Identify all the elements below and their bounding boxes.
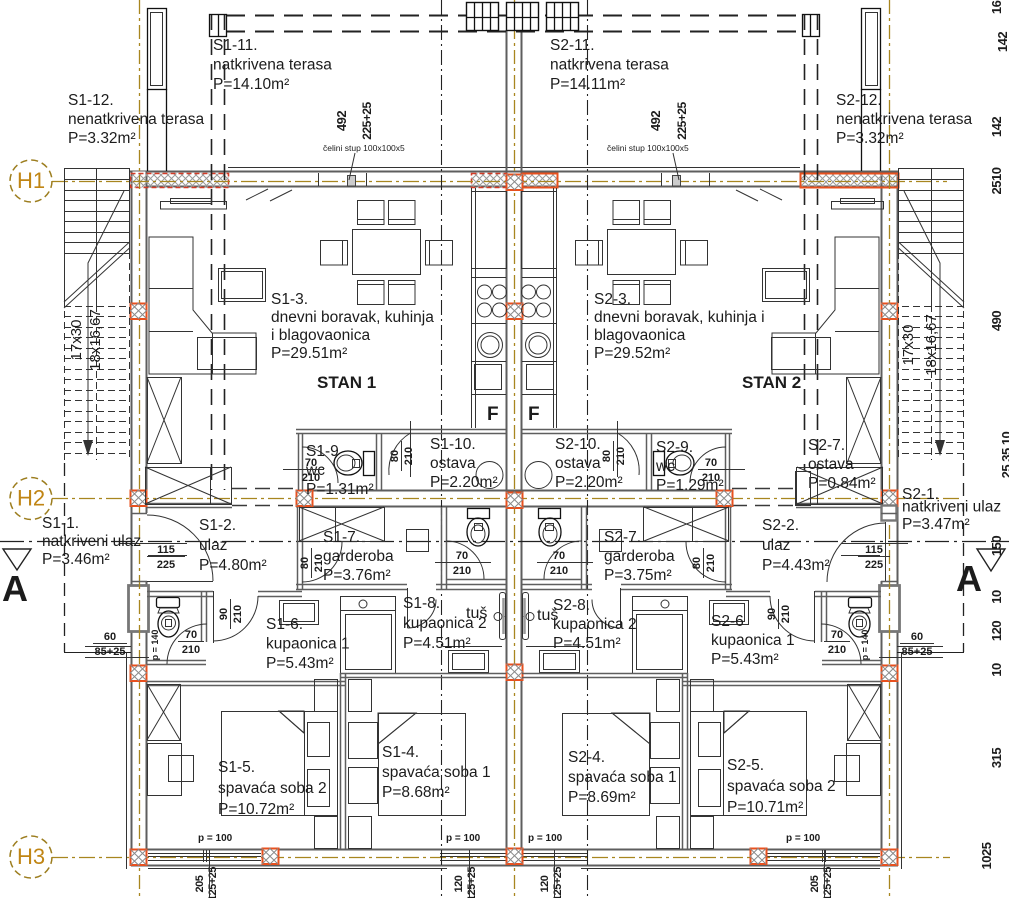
svg-text:čelini stup 100x100x5: čelini stup 100x100x5 xyxy=(323,143,405,153)
svg-text:natkriveni ulaz: natkriveni ulaz xyxy=(42,533,141,550)
svg-text:115: 115 xyxy=(865,544,883,556)
svg-text:225: 225 xyxy=(865,559,883,571)
svg-text:10: 10 xyxy=(989,590,1004,604)
svg-text:70: 70 xyxy=(831,629,843,641)
svg-text:P=8.68m²: P=8.68m² xyxy=(382,784,450,801)
svg-text:spavaća soba 1: spavaća soba 1 xyxy=(382,764,491,781)
svg-text:210: 210 xyxy=(780,605,792,623)
svg-text:210: 210 xyxy=(403,447,415,465)
svg-text:S1-6.: S1-6. xyxy=(266,616,303,633)
svg-text:S2-5.: S2-5. xyxy=(727,757,764,774)
svg-text:S1-12.: S1-12. xyxy=(68,92,114,109)
svg-text:garderoba: garderoba xyxy=(604,548,675,565)
svg-text:p = 140: p = 140 xyxy=(860,630,870,661)
svg-text:142: 142 xyxy=(989,117,1004,137)
svg-text:10: 10 xyxy=(989,663,1004,677)
svg-text:S2-4.: S2-4. xyxy=(568,749,605,766)
svg-text:tuš: tuš xyxy=(537,607,558,624)
svg-text:125+25: 125+25 xyxy=(552,867,564,898)
svg-text:S1-1.: S1-1. xyxy=(42,515,79,532)
svg-text:315: 315 xyxy=(989,748,1004,768)
svg-text:S1-2.: S1-2. xyxy=(199,517,236,534)
svg-text:čelini stup 100x100x5: čelini stup 100x100x5 xyxy=(607,143,689,153)
svg-text:p = 140: p = 140 xyxy=(150,630,160,661)
svg-text:P=5.43m²: P=5.43m² xyxy=(711,651,779,668)
svg-text:natkriveni ulaz: natkriveni ulaz xyxy=(902,499,1001,516)
svg-text:210: 210 xyxy=(705,554,717,572)
svg-text:150: 150 xyxy=(989,536,1004,556)
svg-text:210: 210 xyxy=(313,554,325,572)
svg-text:210: 210 xyxy=(550,565,568,577)
svg-text:P=4.51m²: P=4.51m² xyxy=(403,635,471,652)
svg-text:210: 210 xyxy=(453,565,471,577)
svg-text:P=10.71m²: P=10.71m² xyxy=(727,799,803,816)
svg-text:80: 80 xyxy=(601,450,613,462)
svg-text:S1-8.: S1-8. xyxy=(403,595,440,612)
svg-text:18x16,67: 18x16,67 xyxy=(923,314,940,376)
svg-text:S2-7.: S2-7. xyxy=(808,437,845,454)
svg-text:ostava: ostava xyxy=(808,456,854,473)
svg-text:205: 205 xyxy=(194,875,206,892)
svg-text:210: 210 xyxy=(302,472,320,484)
svg-text:210: 210 xyxy=(615,447,627,465)
svg-text:492: 492 xyxy=(334,111,349,131)
svg-text:nenatkrivena terasa: nenatkrivena terasa xyxy=(68,111,205,128)
svg-text:P=3.76m²: P=3.76m² xyxy=(323,567,391,584)
svg-text:F: F xyxy=(487,404,499,425)
svg-text:dnevni boravak, kuhinja: dnevni boravak, kuhinja xyxy=(271,309,434,326)
svg-text:80: 80 xyxy=(389,450,401,462)
svg-text:spavaća soba 1: spavaća soba 1 xyxy=(568,769,677,786)
svg-text:S2-10.: S2-10. xyxy=(555,436,601,453)
svg-text:125+25: 125+25 xyxy=(822,867,834,898)
svg-text:p = 100: p = 100 xyxy=(198,833,233,844)
svg-text:80: 80 xyxy=(299,557,311,569)
svg-text:210: 210 xyxy=(182,644,200,656)
svg-text:S1-11.: S1-11. xyxy=(213,37,258,54)
svg-text:ostava: ostava xyxy=(430,455,476,472)
svg-text:P=14.11m²: P=14.11m² xyxy=(550,76,625,93)
svg-text:S2-12.: S2-12. xyxy=(836,92,882,109)
svg-text:492: 492 xyxy=(648,111,663,131)
svg-text:S2-9.: S2-9. xyxy=(656,439,693,456)
svg-text:kupaonica 1: kupaonica 1 xyxy=(711,632,795,649)
svg-text:P=29.51m²: P=29.51m² xyxy=(271,345,347,362)
svg-text:P=4.51m²: P=4.51m² xyxy=(553,635,621,652)
svg-text:nenatkrivena terasa: nenatkrivena terasa xyxy=(836,111,973,128)
svg-text:P=8.69m²: P=8.69m² xyxy=(568,789,636,806)
svg-text:wc: wc xyxy=(655,458,675,475)
svg-text:60: 60 xyxy=(911,631,923,643)
svg-text:P=5.43m²: P=5.43m² xyxy=(266,655,334,672)
svg-text:P=3.32m²: P=3.32m² xyxy=(836,130,904,147)
svg-text:P=2.20m²: P=2.20m² xyxy=(430,474,498,491)
svg-text:tuš: tuš xyxy=(466,605,487,622)
svg-text:spavaća soba 2: spavaća soba 2 xyxy=(727,778,836,795)
svg-text:H2: H2 xyxy=(17,486,45,511)
svg-text:S1-7.: S1-7. xyxy=(323,529,360,546)
svg-text:H3: H3 xyxy=(17,844,45,869)
svg-text:P=10.72m²: P=10.72m² xyxy=(218,801,294,818)
svg-text:S2-2.: S2-2. xyxy=(762,517,799,534)
svg-text:kupaonica 2: kupaonica 2 xyxy=(553,616,637,633)
svg-text:blagovaonica: blagovaonica xyxy=(594,327,686,344)
svg-text:STAN 2: STAN 2 xyxy=(742,373,801,392)
svg-text:70: 70 xyxy=(705,457,717,469)
svg-text:70: 70 xyxy=(185,629,197,641)
svg-text:P=4.80m²: P=4.80m² xyxy=(199,557,267,574)
svg-text:18x16,67: 18x16,67 xyxy=(87,309,104,371)
svg-text:spavaća soba 2: spavaća soba 2 xyxy=(218,780,327,797)
svg-text:115: 115 xyxy=(157,544,175,556)
svg-text:1025: 1025 xyxy=(979,842,994,869)
svg-text:garderoba: garderoba xyxy=(323,548,394,565)
svg-text:S2-8.: S2-8. xyxy=(553,597,590,614)
svg-text:P=0.84m²: P=0.84m² xyxy=(808,475,876,492)
svg-text:p = 100: p = 100 xyxy=(528,833,563,844)
svg-text:90: 90 xyxy=(218,608,230,620)
svg-text:A: A xyxy=(956,558,982,599)
svg-text:210: 210 xyxy=(828,644,846,656)
svg-text:2510: 2510 xyxy=(989,167,1004,194)
svg-text:F: F xyxy=(528,404,540,425)
svg-text:S2-7.: S2-7. xyxy=(604,529,641,546)
svg-text:125+25: 125+25 xyxy=(466,867,478,898)
svg-text:H1: H1 xyxy=(17,168,45,193)
svg-text:S1-10.: S1-10. xyxy=(430,436,476,453)
svg-text:160: 160 xyxy=(989,0,1004,14)
svg-text:205: 205 xyxy=(809,875,821,892)
svg-text:i blagovaonica: i blagovaonica xyxy=(271,327,370,344)
svg-text:P=2.20m²: P=2.20m² xyxy=(555,474,623,491)
svg-text:P=4.43m²: P=4.43m² xyxy=(762,557,830,574)
svg-text:S1-5.: S1-5. xyxy=(218,759,255,776)
svg-text:S1-4.: S1-4. xyxy=(382,744,419,761)
svg-text:ulaz: ulaz xyxy=(199,537,227,554)
svg-text:STAN 1: STAN 1 xyxy=(317,373,376,392)
svg-text:natkrivena terasa: natkrivena terasa xyxy=(213,57,332,74)
svg-text:225: 225 xyxy=(157,559,175,571)
svg-text:70: 70 xyxy=(553,550,565,562)
svg-text:P=14.10m²: P=14.10m² xyxy=(213,76,289,93)
svg-text:70: 70 xyxy=(456,550,468,562)
svg-text:P=3.75m²: P=3.75m² xyxy=(604,567,672,584)
svg-text:kupaonica 1: kupaonica 1 xyxy=(266,636,350,653)
svg-text:142: 142 xyxy=(995,32,1009,52)
svg-text:S2-11.: S2-11. xyxy=(550,37,595,54)
svg-text:ulaz: ulaz xyxy=(762,537,790,554)
svg-text:85+25: 85+25 xyxy=(902,646,933,658)
svg-text:490: 490 xyxy=(989,311,1004,331)
svg-text:85+25: 85+25 xyxy=(95,646,126,658)
svg-text:17x30: 17x30 xyxy=(900,325,917,366)
svg-text:ostava: ostava xyxy=(555,455,601,472)
svg-text:S2-3.: S2-3. xyxy=(594,291,631,308)
svg-text:S1-3.: S1-3. xyxy=(271,291,308,308)
svg-text:25,35,10: 25,35,10 xyxy=(999,431,1009,478)
svg-text:90: 90 xyxy=(766,608,778,620)
svg-text:120: 120 xyxy=(989,621,1004,641)
svg-text:210: 210 xyxy=(232,605,244,623)
svg-text:P=3.47m²: P=3.47m² xyxy=(902,516,970,533)
svg-text:70: 70 xyxy=(305,457,317,469)
svg-text:17x30: 17x30 xyxy=(68,320,85,361)
svg-text:225+25: 225+25 xyxy=(360,101,374,139)
svg-text:120: 120 xyxy=(539,875,551,892)
svg-text:S2-6: S2-6 xyxy=(711,613,744,630)
svg-text:125+25: 125+25 xyxy=(207,867,219,898)
svg-text:120: 120 xyxy=(453,875,465,892)
svg-text:P=3.32m²: P=3.32m² xyxy=(68,130,136,147)
svg-text:p = 100: p = 100 xyxy=(786,833,821,844)
svg-text:80: 80 xyxy=(691,557,703,569)
svg-text:p = 100: p = 100 xyxy=(446,833,481,844)
svg-text:P=3.46m²: P=3.46m² xyxy=(42,551,110,568)
svg-text:210: 210 xyxy=(702,472,720,484)
svg-text:225+25: 225+25 xyxy=(675,101,689,139)
svg-text:60: 60 xyxy=(104,631,116,643)
svg-text:P=29.52m²: P=29.52m² xyxy=(594,345,670,362)
svg-text:A: A xyxy=(2,568,28,609)
svg-text:dnevni boravak, kuhinja i: dnevni boravak, kuhinja i xyxy=(594,309,765,326)
svg-text:natkrivena terasa: natkrivena terasa xyxy=(550,57,669,74)
